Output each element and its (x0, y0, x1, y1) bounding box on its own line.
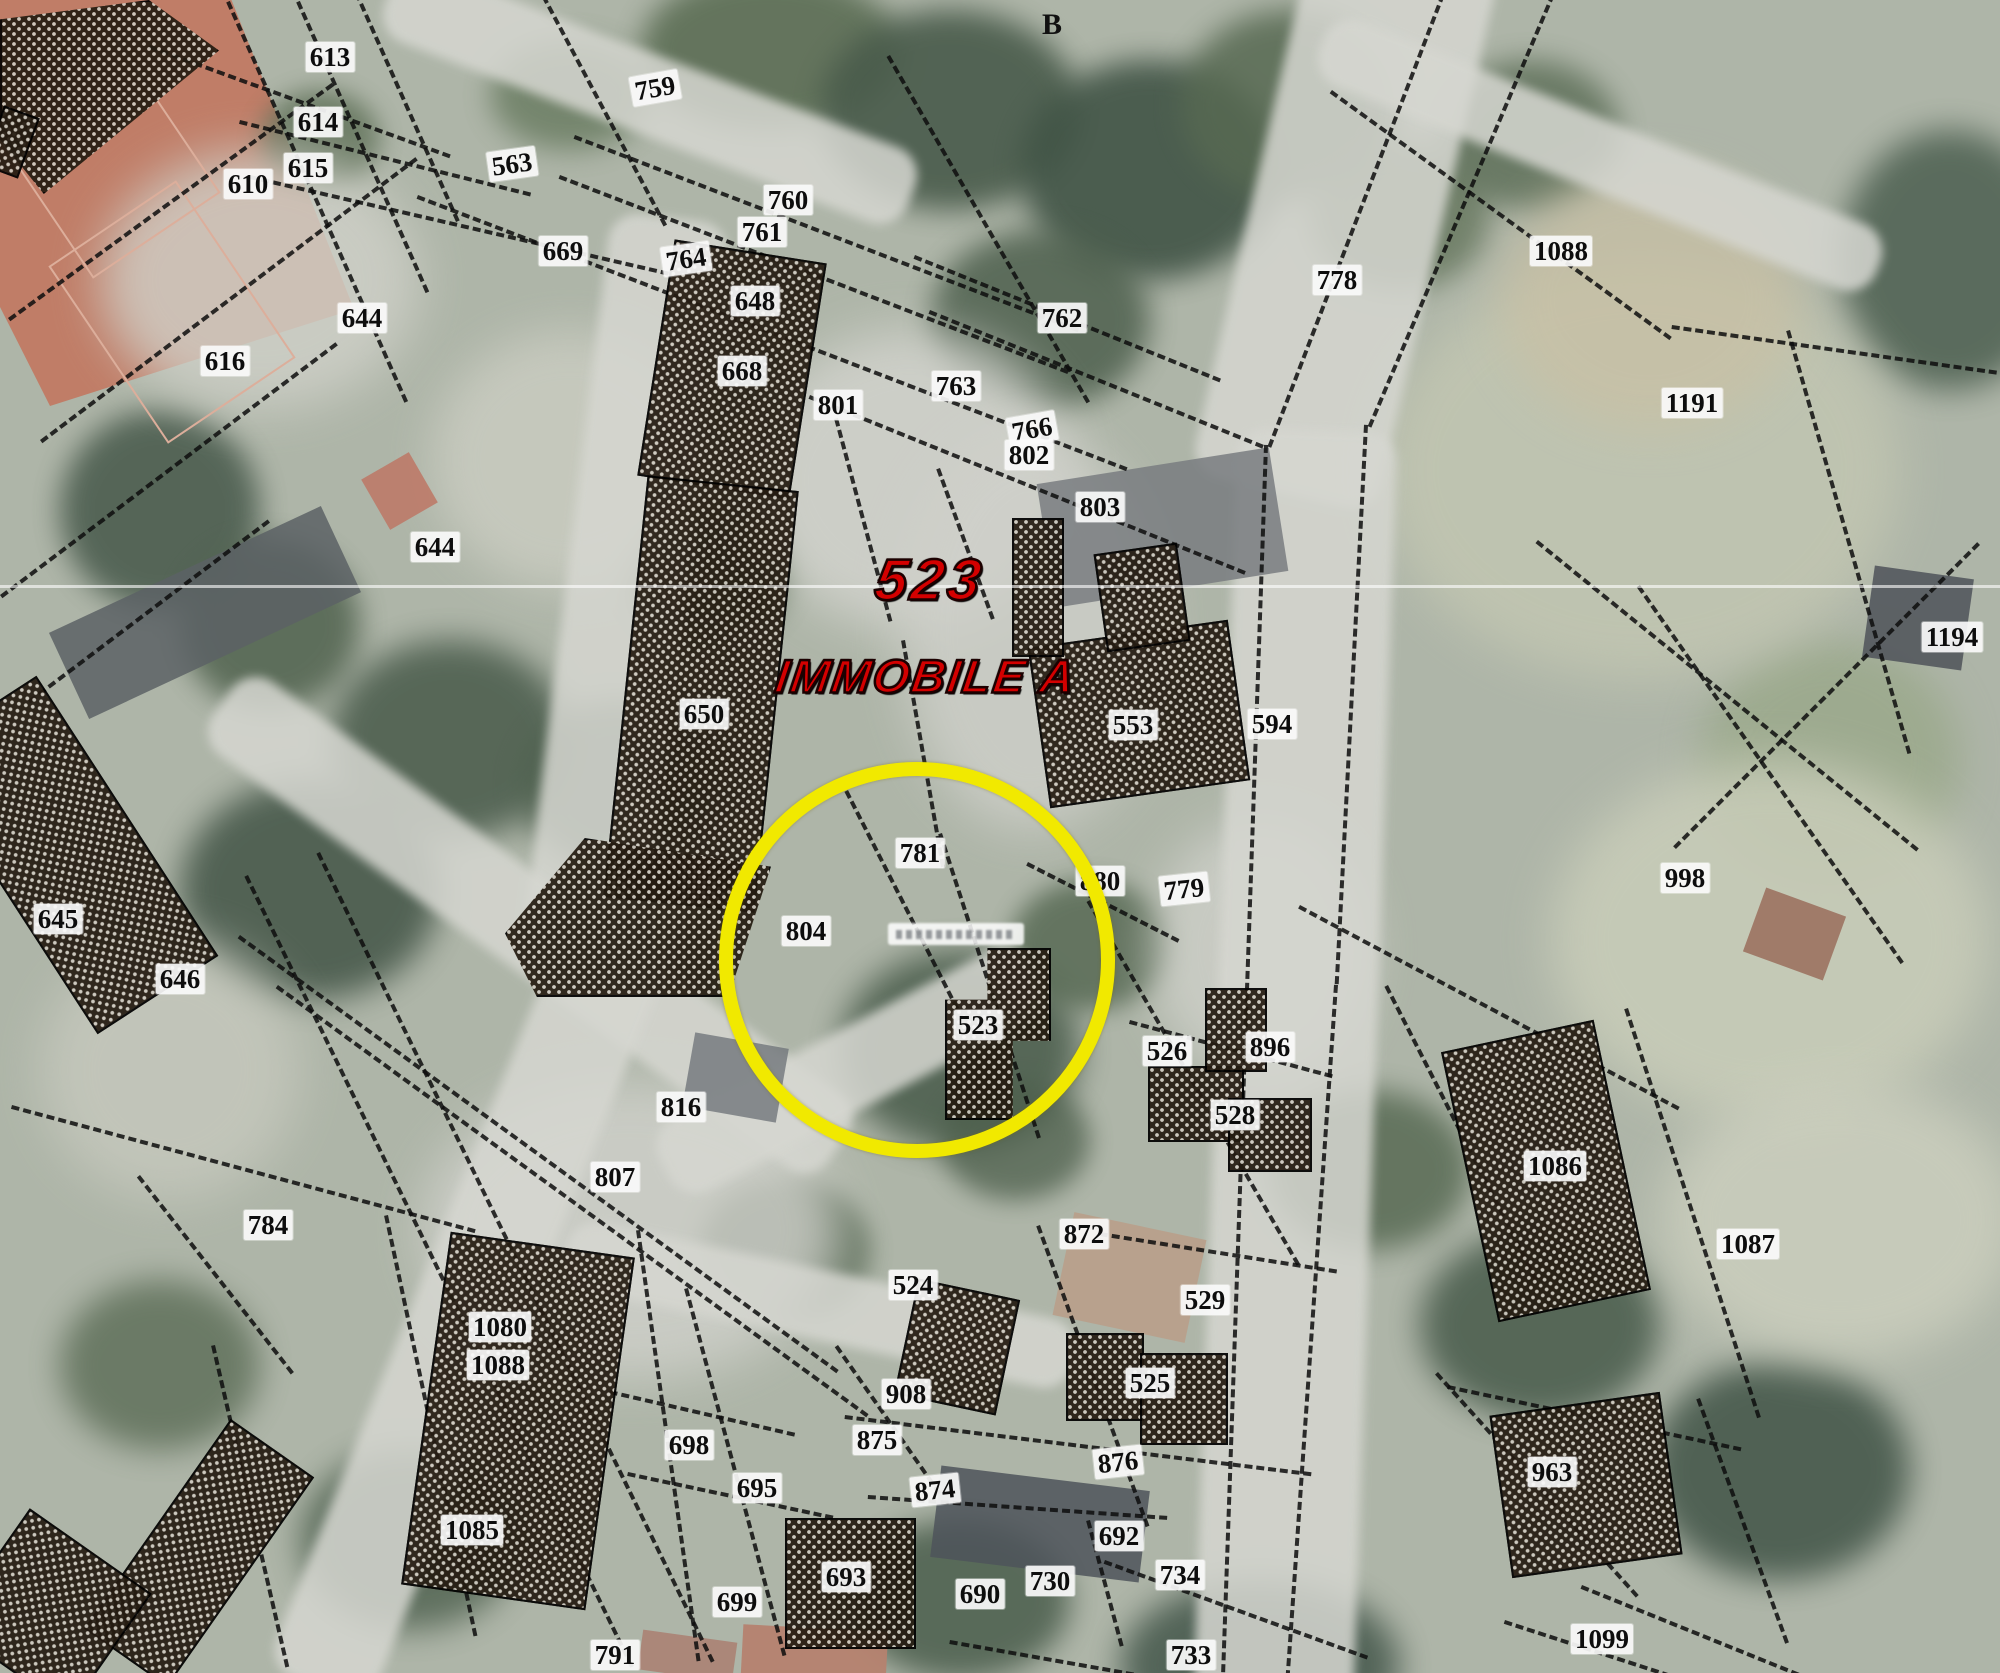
parcel-label-669: 669 (539, 236, 588, 266)
parcel-label-734: 734 (1156, 1560, 1205, 1590)
parcel-label-613: 613 (306, 42, 355, 72)
parcel-label-762: 762 (1038, 303, 1087, 333)
parcel-label-778: 778 (1313, 265, 1362, 295)
parcel-label-699: 699 (713, 1587, 762, 1617)
parcel-label-1085: 1085 (441, 1515, 503, 1545)
parcel-label-784: 784 (244, 1210, 293, 1240)
cadastral-aerial-map: 6136146156105636697646446166447597607616… (0, 0, 2000, 1673)
parcel-label-563: 563 (486, 146, 538, 182)
parcel-label-802: 802 (1005, 440, 1054, 470)
parcel-label-807: 807 (591, 1162, 640, 1192)
parcel-label-875: 875 (853, 1425, 902, 1455)
parcel-label-526: 526 (1143, 1036, 1192, 1066)
photo-terrain-blob (1650, 1360, 1910, 1580)
parcel-label-528: 528 (1211, 1100, 1260, 1130)
parcel-label-616: 616 (201, 346, 250, 376)
parcel-label-872: 872 (1060, 1219, 1109, 1249)
parcel-label-644: 644 (411, 532, 460, 562)
hatched-building (1094, 543, 1191, 653)
parcel-label-529: 529 (1181, 1285, 1230, 1315)
parcel-label-1088: 1088 (467, 1350, 529, 1380)
parcel-label-1191: 1191 (1662, 388, 1723, 418)
parcel-label-644: 644 (338, 303, 387, 333)
parcel-label-645: 645 (34, 904, 83, 934)
parcel-label-553: 553 (1109, 710, 1158, 740)
parcel-label-648: 648 (731, 286, 780, 316)
parcel-label-791: 791 (591, 1640, 640, 1670)
parcel-label-524: 524 (889, 1270, 938, 1300)
parcel-label-908: 908 (882, 1379, 931, 1409)
parcel-label-801: 801 (814, 390, 863, 420)
photo-building-roof (638, 1630, 738, 1673)
parcel-label-876: 876 (1092, 1445, 1143, 1480)
parcel-label-614: 614 (294, 107, 343, 137)
parcel-label-998: 998 (1661, 863, 1710, 893)
parcel-boundary-line (627, 1472, 833, 1520)
parcel-label-1088: 1088 (1530, 236, 1592, 266)
parcel-label-668: 668 (718, 356, 767, 386)
parcel-label-874: 874 (909, 1473, 960, 1508)
parcel-label-803: 803 (1076, 492, 1125, 522)
parcel-label-779: 779 (1158, 872, 1209, 907)
parcel-label-610: 610 (224, 169, 273, 199)
parcel-label-525: 525 (1126, 1368, 1175, 1398)
parcel-label-760: 760 (764, 185, 813, 215)
parcel-label-1080: 1080 (469, 1312, 531, 1342)
parcel-label-761: 761 (738, 217, 787, 247)
hatched-building (1489, 1392, 1682, 1578)
parcel-label-615: 615 (284, 153, 333, 183)
parcel-label-698: 698 (665, 1430, 714, 1460)
hatched-building (1140, 1353, 1228, 1445)
parcel-label-692: 692 (1095, 1521, 1144, 1551)
parcel-label-963: 963 (1528, 1457, 1577, 1487)
parcel-label-693: 693 (822, 1562, 871, 1592)
parcel-label-695: 695 (733, 1473, 782, 1503)
parcel-label-1194: 1194 (1922, 622, 1983, 652)
parcel-label-646: 646 (156, 964, 205, 994)
parcel-label-690: 690 (956, 1579, 1005, 1609)
parcel-label-733: 733 (1167, 1640, 1216, 1670)
highlight-circle (719, 762, 1115, 1158)
white-scan-line (0, 585, 2000, 588)
parcel-label-896: 896 (1246, 1032, 1295, 1062)
parcel-label-1099: 1099 (1571, 1624, 1633, 1654)
parcel-523-red-label: 523 (871, 547, 989, 614)
parcel-label-1087: 1087 (1717, 1229, 1779, 1259)
photo-building-roof (361, 452, 438, 530)
parcel-label-B: B (1038, 10, 1066, 40)
parcel-label-650: 650 (680, 699, 729, 729)
photo-terrain-blob (1660, 1080, 2000, 1360)
parcel-label-816: 816 (657, 1092, 706, 1122)
parcel-label-763: 763 (932, 371, 981, 401)
parcel-label-730: 730 (1026, 1566, 1075, 1596)
parcel-label-1086: 1086 (1524, 1151, 1586, 1181)
immobile-a-red-label: IMMOBILE A (772, 649, 1080, 704)
parcel-label-594: 594 (1248, 709, 1297, 739)
